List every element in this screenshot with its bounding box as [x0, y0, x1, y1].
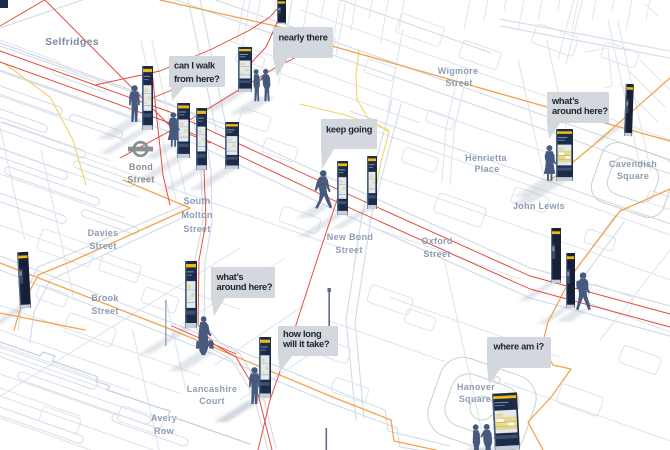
svg-text:Street: Street — [127, 175, 154, 185]
svg-text:nearly there: nearly there — [279, 33, 328, 43]
svg-text:Henrietta: Henrietta — [465, 153, 507, 163]
svg-text:Wigmore: Wigmore — [438, 66, 479, 76]
svg-text:around here?: around here? — [217, 282, 273, 292]
svg-text:where am i?: where am i? — [493, 342, 545, 352]
svg-text:Brook: Brook — [91, 293, 119, 303]
svg-text:how long: how long — [283, 329, 322, 339]
svg-text:what’s: what’s — [216, 272, 244, 282]
svg-text:Davies: Davies — [88, 228, 119, 238]
svg-text:Selfridges: Selfridges — [45, 36, 99, 48]
svg-text:Street: Street — [423, 249, 450, 259]
svg-text:Molton: Molton — [181, 210, 212, 220]
svg-text:can I walk: can I walk — [174, 61, 216, 71]
svg-text:Lancashire: Lancashire — [187, 384, 238, 394]
svg-text:what’s: what’s — [551, 96, 579, 106]
svg-text:Cavendish: Cavendish — [609, 159, 657, 169]
svg-text:Street: Street — [91, 306, 118, 316]
svg-text:Row: Row — [154, 426, 175, 436]
svg-text:New Bond: New Bond — [327, 232, 373, 242]
svg-text:Place: Place — [474, 164, 499, 174]
svg-text:around here?: around here? — [552, 106, 608, 116]
svg-text:Street: Street — [89, 241, 116, 251]
svg-text:Street: Street — [445, 78, 472, 88]
svg-text:keep going: keep going — [326, 125, 373, 135]
svg-text:Street: Street — [183, 224, 210, 234]
svg-text:John Lewis: John Lewis — [513, 201, 565, 211]
svg-text:South: South — [184, 196, 211, 206]
svg-text:Street: Street — [335, 245, 362, 255]
svg-text:Oxford: Oxford — [421, 236, 452, 246]
svg-text:Court: Court — [199, 396, 225, 406]
svg-text:Hanover: Hanover — [457, 382, 495, 392]
svg-text:will it take?: will it take? — [282, 339, 330, 349]
svg-text:from here?: from here? — [174, 74, 220, 84]
svg-text:Square: Square — [617, 171, 649, 181]
svg-text:Bond: Bond — [129, 162, 153, 172]
svg-text:Square: Square — [459, 394, 491, 404]
